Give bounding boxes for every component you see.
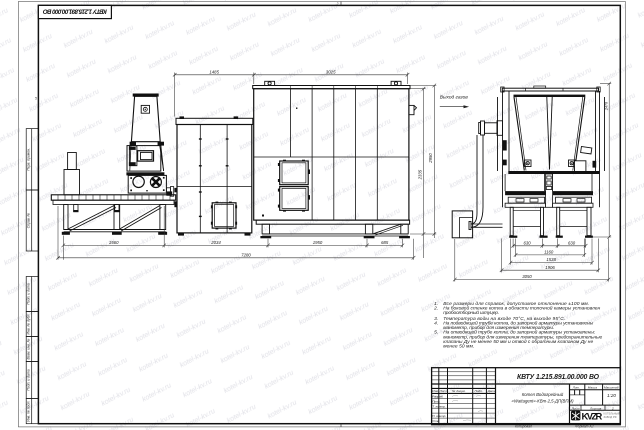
svg-text:2034: 2034	[210, 240, 221, 245]
svg-text:Масса: Масса	[588, 386, 597, 390]
svg-text:2950: 2950	[428, 153, 433, 164]
svg-text:1560: 1560	[109, 240, 119, 245]
svg-text:5: 5	[35, 97, 37, 101]
svg-text:Подп. и дата: Подп. и дата	[27, 369, 31, 390]
svg-text:1906: 1906	[545, 265, 555, 270]
svg-text:КВТУ 1.215.891.00.000 ВО: КВТУ 1.215.891.00.000 ВО	[43, 7, 107, 14]
svg-text:Взам. инв. №: Взам. инв. №	[27, 338, 31, 359]
svg-text:630: 630	[568, 240, 576, 245]
svg-text:1538: 1538	[546, 257, 556, 262]
svg-text:5.: 5.	[434, 330, 438, 336]
svg-text:685: 685	[381, 240, 389, 245]
svg-text:Пров.: Пров.	[432, 399, 440, 403]
svg-text:KVZR: KVZR	[582, 411, 603, 422]
svg-text:1950: 1950	[313, 240, 323, 245]
svg-text:Лит.: Лит.	[572, 386, 580, 390]
svg-text:2335: 2335	[417, 169, 422, 180]
svg-text:3025: 3025	[326, 69, 336, 74]
svg-text:7280: 7280	[241, 252, 251, 257]
svg-text:Дата: Дата	[487, 389, 496, 393]
svg-text:Перв. примен.: Перв. примен.	[27, 148, 31, 171]
svg-text:Выход газов: Выход газов	[440, 95, 468, 101]
svg-text:Инв. № дубл.: Инв. № дубл.	[27, 314, 31, 335]
svg-text:Разраб.: Разраб.	[432, 394, 443, 398]
svg-text:Котел Водогрейный: Котел Водогрейный	[522, 392, 564, 397]
svg-text:ЗАВОД РФ: ЗАВОД РФ	[604, 415, 617, 419]
svg-text:КОТЕЛЬНЫЙ: КОТЕЛЬНЫЙ	[604, 411, 620, 415]
svg-text:Подп. и дата: Подп. и дата	[27, 283, 31, 304]
svg-text:Лист: Лист	[571, 406, 580, 410]
svg-text:2470: 2470	[605, 102, 609, 111]
svg-text:2: 2	[336, 2, 339, 6]
svg-text:Изм.: Изм.	[432, 389, 439, 393]
svg-text:«Wattagent»-КВт-2,5-ДП(ВПМ): «Wattagent»-КВт-2,5-ДП(ВПМ)	[511, 398, 574, 403]
svg-text:Инв. № подл.: Инв. № подл.	[27, 401, 31, 422]
svg-text:Масштаб: Масштаб	[604, 386, 619, 390]
svg-text:№ докум.: № докум.	[452, 389, 466, 393]
svg-text:4.: 4.	[434, 321, 438, 327]
svg-text:2.: 2.	[433, 306, 438, 312]
svg-text:пробоотборный штуцер.: пробоотборный штуцер.	[443, 309, 499, 316]
svg-text:Копировал: Копировал	[515, 425, 532, 429]
svg-text:Н. контр.: Н. контр.	[432, 414, 446, 418]
svg-text:3050: 3050	[522, 274, 532, 279]
svg-text:Лист: Лист	[439, 389, 448, 393]
svg-text:1:20: 1:20	[607, 393, 616, 398]
svg-text:630: 630	[524, 240, 532, 245]
svg-text:1485: 1485	[209, 69, 219, 74]
svg-text:Утв.: Утв.	[432, 419, 439, 423]
svg-text:1160: 1160	[544, 250, 554, 255]
svg-text:менее 50 мм.: менее 50 мм.	[443, 343, 474, 349]
svg-text:2: 2	[611, 406, 614, 410]
svg-text:Т. контр.: Т. контр.	[432, 404, 445, 408]
svg-text:КВТУ 1.215.891.00.000 ВО: КВТУ 1.215.891.00.000 ВО	[517, 374, 600, 381]
svg-text:Формат А2: Формат А2	[575, 425, 594, 429]
svg-text:Справ. №: Справ. №	[27, 212, 31, 228]
svg-text:Подп.: Подп.	[475, 389, 483, 393]
